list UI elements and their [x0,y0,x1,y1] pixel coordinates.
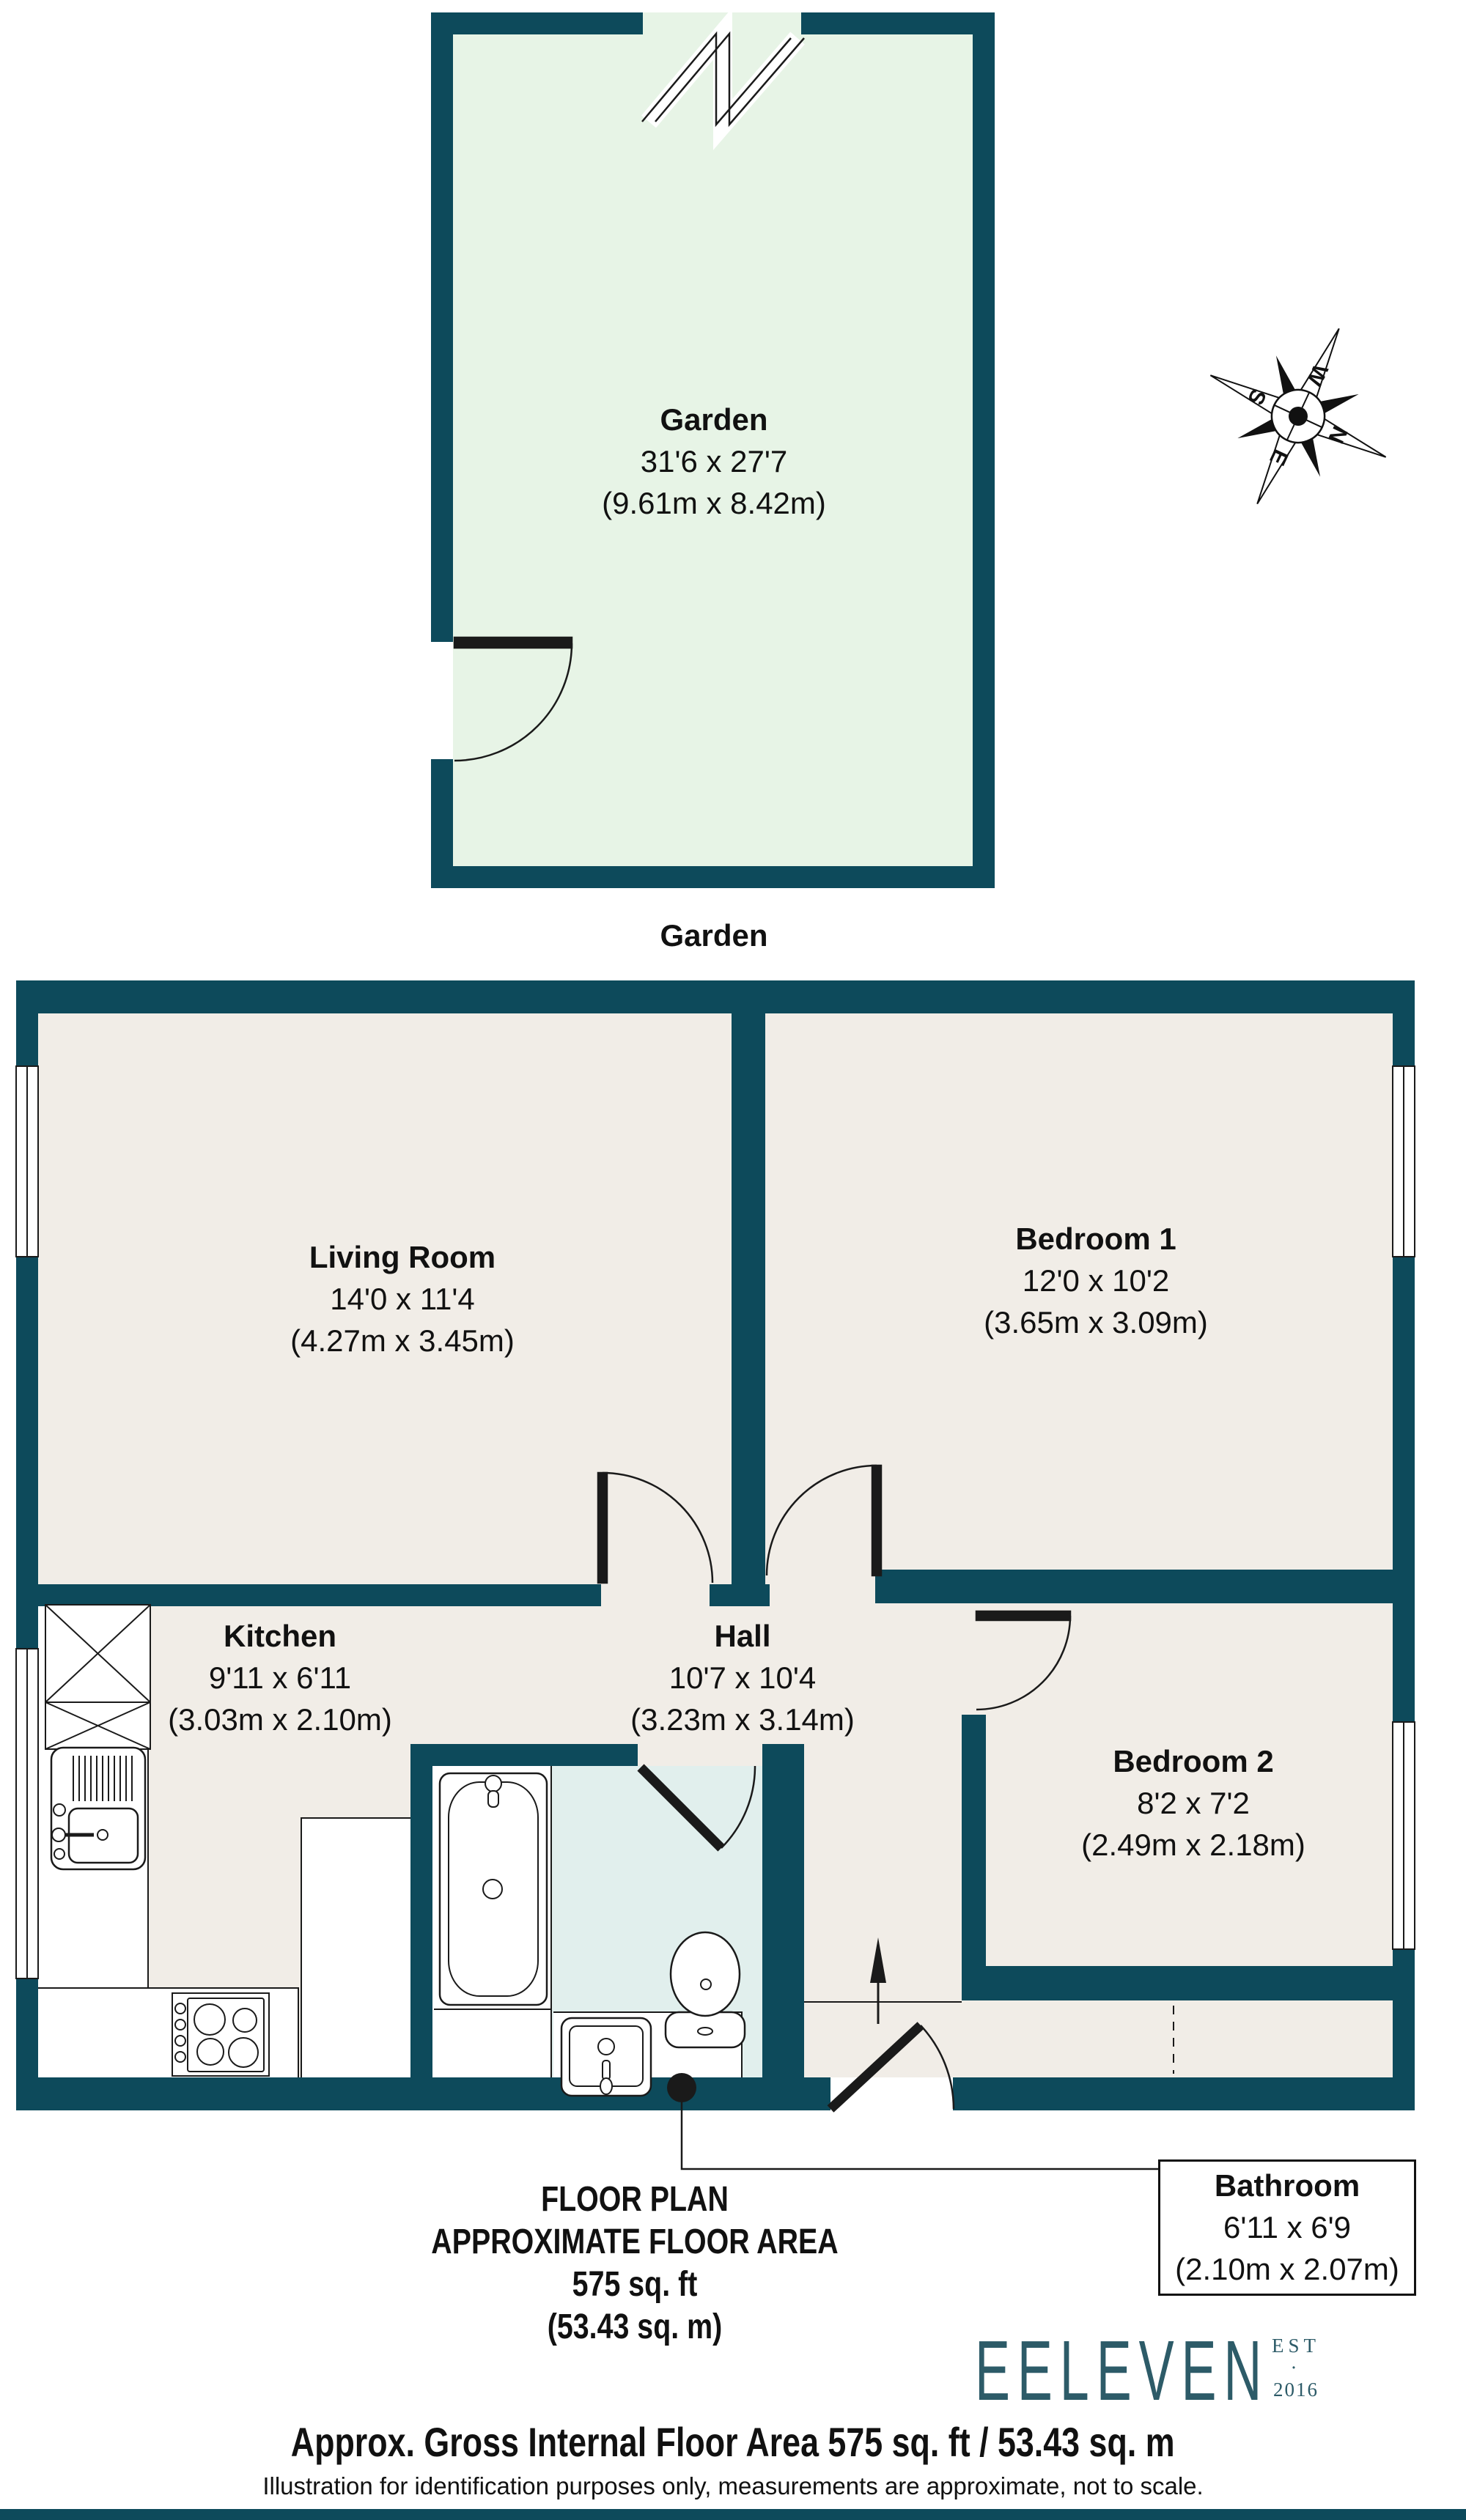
garden-gate-leaf [454,638,572,648]
garden-label: Garden 31'6 x 27'7 (9.61m x 8.42m) [494,399,934,524]
front-door-leaf [830,2025,921,2109]
bathroom-door-arc [721,1766,755,1848]
disclaimer-line: Illustration for identification purposes… [0,2472,1466,2500]
bedroom2-label: Bedroom 2 8'2 x 7'2 (2.49m x 2.18m) [1010,1740,1377,1866]
compass-rose-icon: N E S W [1170,288,1427,545]
garden-gate-swing-arc [454,643,572,761]
front-door-arc [921,2025,954,2109]
bedroom2-door-arc [976,1616,1070,1710]
floor-plan-title: FLOOR PLAN [400,2179,869,2221]
garden-name: Garden [494,399,934,440]
floor-plan-area-ft: 575 sq. ft [400,2264,869,2306]
living-room-door-arc [603,1473,712,1583]
brand-dot: · [1267,2357,1325,2379]
bedroom2-door-leaf [976,1611,1070,1620]
bedroom1-door-leaf [872,1466,881,1575]
bedroom1-door-arc [767,1466,877,1575]
garden-step-zigzag [649,34,798,125]
basin-drain [598,2039,614,2055]
toilet-bowl [671,1932,740,2016]
basin-tap-stem [603,2061,610,2080]
floorplan-page: N E S W Garden 31'6 x 27'7 (9.61m x 8.42… [0,0,1466,2520]
gross-area-line: Approx. Gross Internal Floor Area 575 sq… [0,2418,1466,2466]
living-room-label: Living Room 14'0 x 11'4 (4.27m x 3.45m) [183,1236,622,1361]
bathroom-callout-box: Bathroom 6'11 x 6'9 (2.10m x 2.07m) [1158,2159,1416,2296]
basin-tap-base [600,2078,612,2094]
bathroom-door-leaf [641,1767,721,1848]
hall-label: Hall 10'7 x 10'4 (3.23m x 3.14m) [603,1615,882,1740]
toilet-flush-button [698,2028,712,2035]
entrance-arrow-head [870,1937,886,1983]
garden-caption: Garden [604,914,824,956]
living-room-door-leaf [598,1473,607,1583]
brand-logo: EELEVEN [975,2321,1269,2420]
floor-plan-subtitle: APPROXIMATE FLOOR AREA [400,2221,869,2264]
garden-dims-ft: 31'6 x 27'7 [494,440,934,482]
brand-est-block: EST · 2016 [1267,2335,1325,2401]
hob-outer [172,1993,269,2076]
brand-year: 2016 [1267,2379,1325,2401]
bathtub-tap-spout [488,1791,498,1807]
bathtub-drain [483,1880,502,1899]
bathroom-leader-dot [667,2073,696,2102]
bedroom1-label: Bedroom 1 12'0 x 10'2 (3.65m x 3.09m) [876,1218,1316,1343]
brand-est: EST [1267,2335,1325,2357]
bathroom-leader-line [682,2088,1160,2169]
garden-dims-m: (9.61m x 8.42m) [494,482,934,524]
floor-plan-note: FLOOR PLAN APPROXIMATE FLOOR AREA 575 sq… [400,2179,869,2349]
kitchen-label: Kitchen 9'11 x 6'11 (3.03m x 2.10m) [141,1615,419,1740]
toilet-bowl-detail [701,1979,711,1989]
bathtub-tap [485,1776,501,1792]
floor-plan-area-m: (53.43 sq. m) [400,2306,869,2349]
